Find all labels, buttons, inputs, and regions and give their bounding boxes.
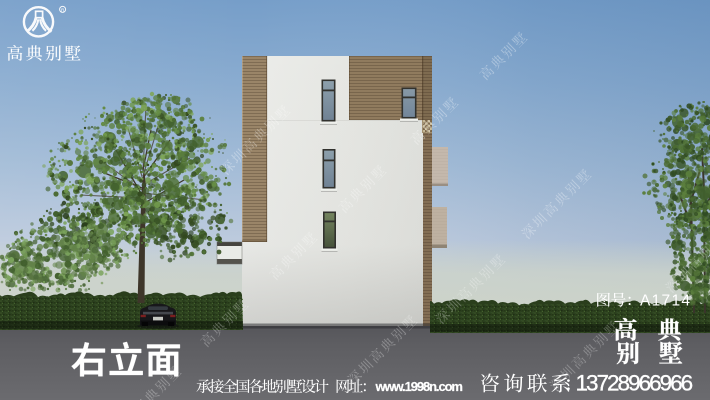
svg-text:13728966966: 13728966966 [576, 371, 693, 396]
svg-text:A1714: A1714 [640, 293, 691, 310]
svg-text:www.1998n.com: www.1998n.com [375, 379, 463, 394]
